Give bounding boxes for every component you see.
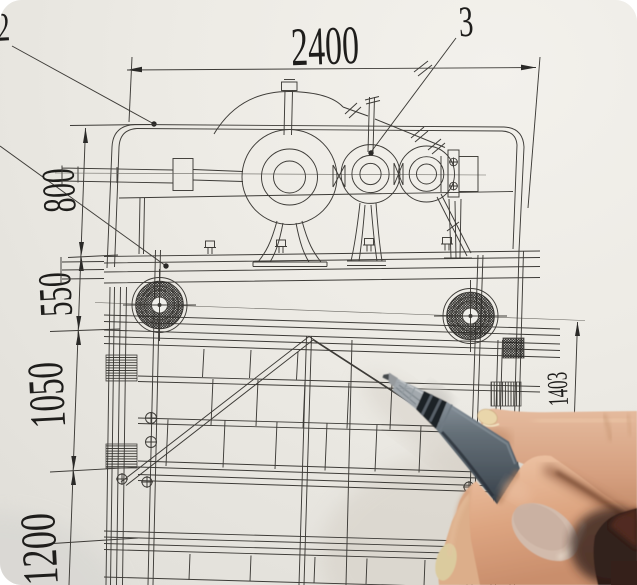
svg-text:1200: 1200: [10, 512, 69, 585]
svg-text:550: 550: [28, 271, 83, 318]
svg-text:1050: 1050: [18, 361, 77, 430]
svg-text:1403: 1403: [542, 371, 575, 407]
svg-text:3: 3: [458, 0, 475, 46]
svg-text:2400: 2400: [290, 15, 360, 77]
